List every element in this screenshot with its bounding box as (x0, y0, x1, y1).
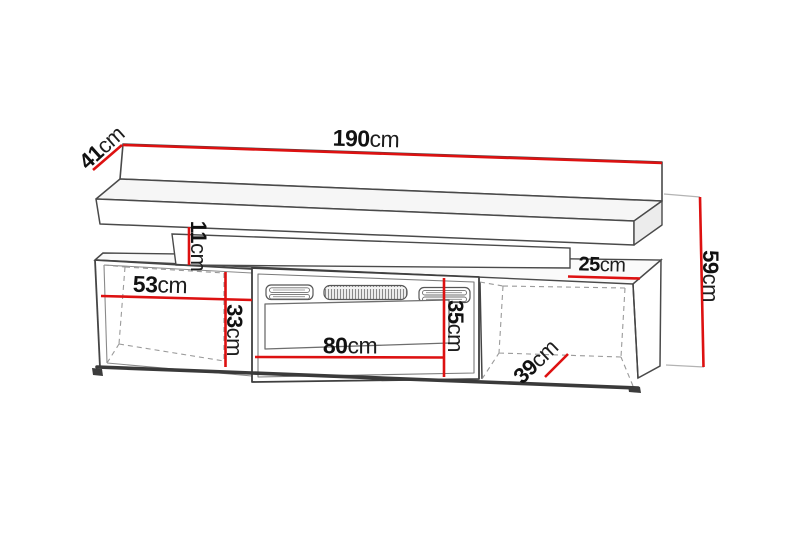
left-foot (92, 368, 103, 376)
dim-label-fireplace-width: 80cm (323, 335, 377, 358)
dim-label-total-width: 190cm (332, 127, 399, 152)
dim-label-top-right-depth: 25cm (578, 254, 625, 275)
dim-label-left-compartment-width: 53cm (133, 273, 188, 297)
diagram-linework (0, 0, 800, 533)
fireplace-control-left (266, 285, 313, 300)
right-foot (628, 386, 641, 393)
dim-label-cabinet-height: 59cm (699, 250, 721, 302)
fireplace-heater-grille (324, 286, 407, 300)
furniture-dimension-diagram: 190cm 41cm 11cm 53cm 33cm 80cm 35cm 25cm… (0, 0, 800, 533)
dim-label-shelf-panel-height: 11cm (187, 221, 209, 272)
right-compartment-hidden-edges (480, 282, 633, 386)
dim-label-fireplace-height: 35cm (444, 300, 466, 352)
dim-label-left-compartment-height: 33cm (223, 304, 245, 356)
